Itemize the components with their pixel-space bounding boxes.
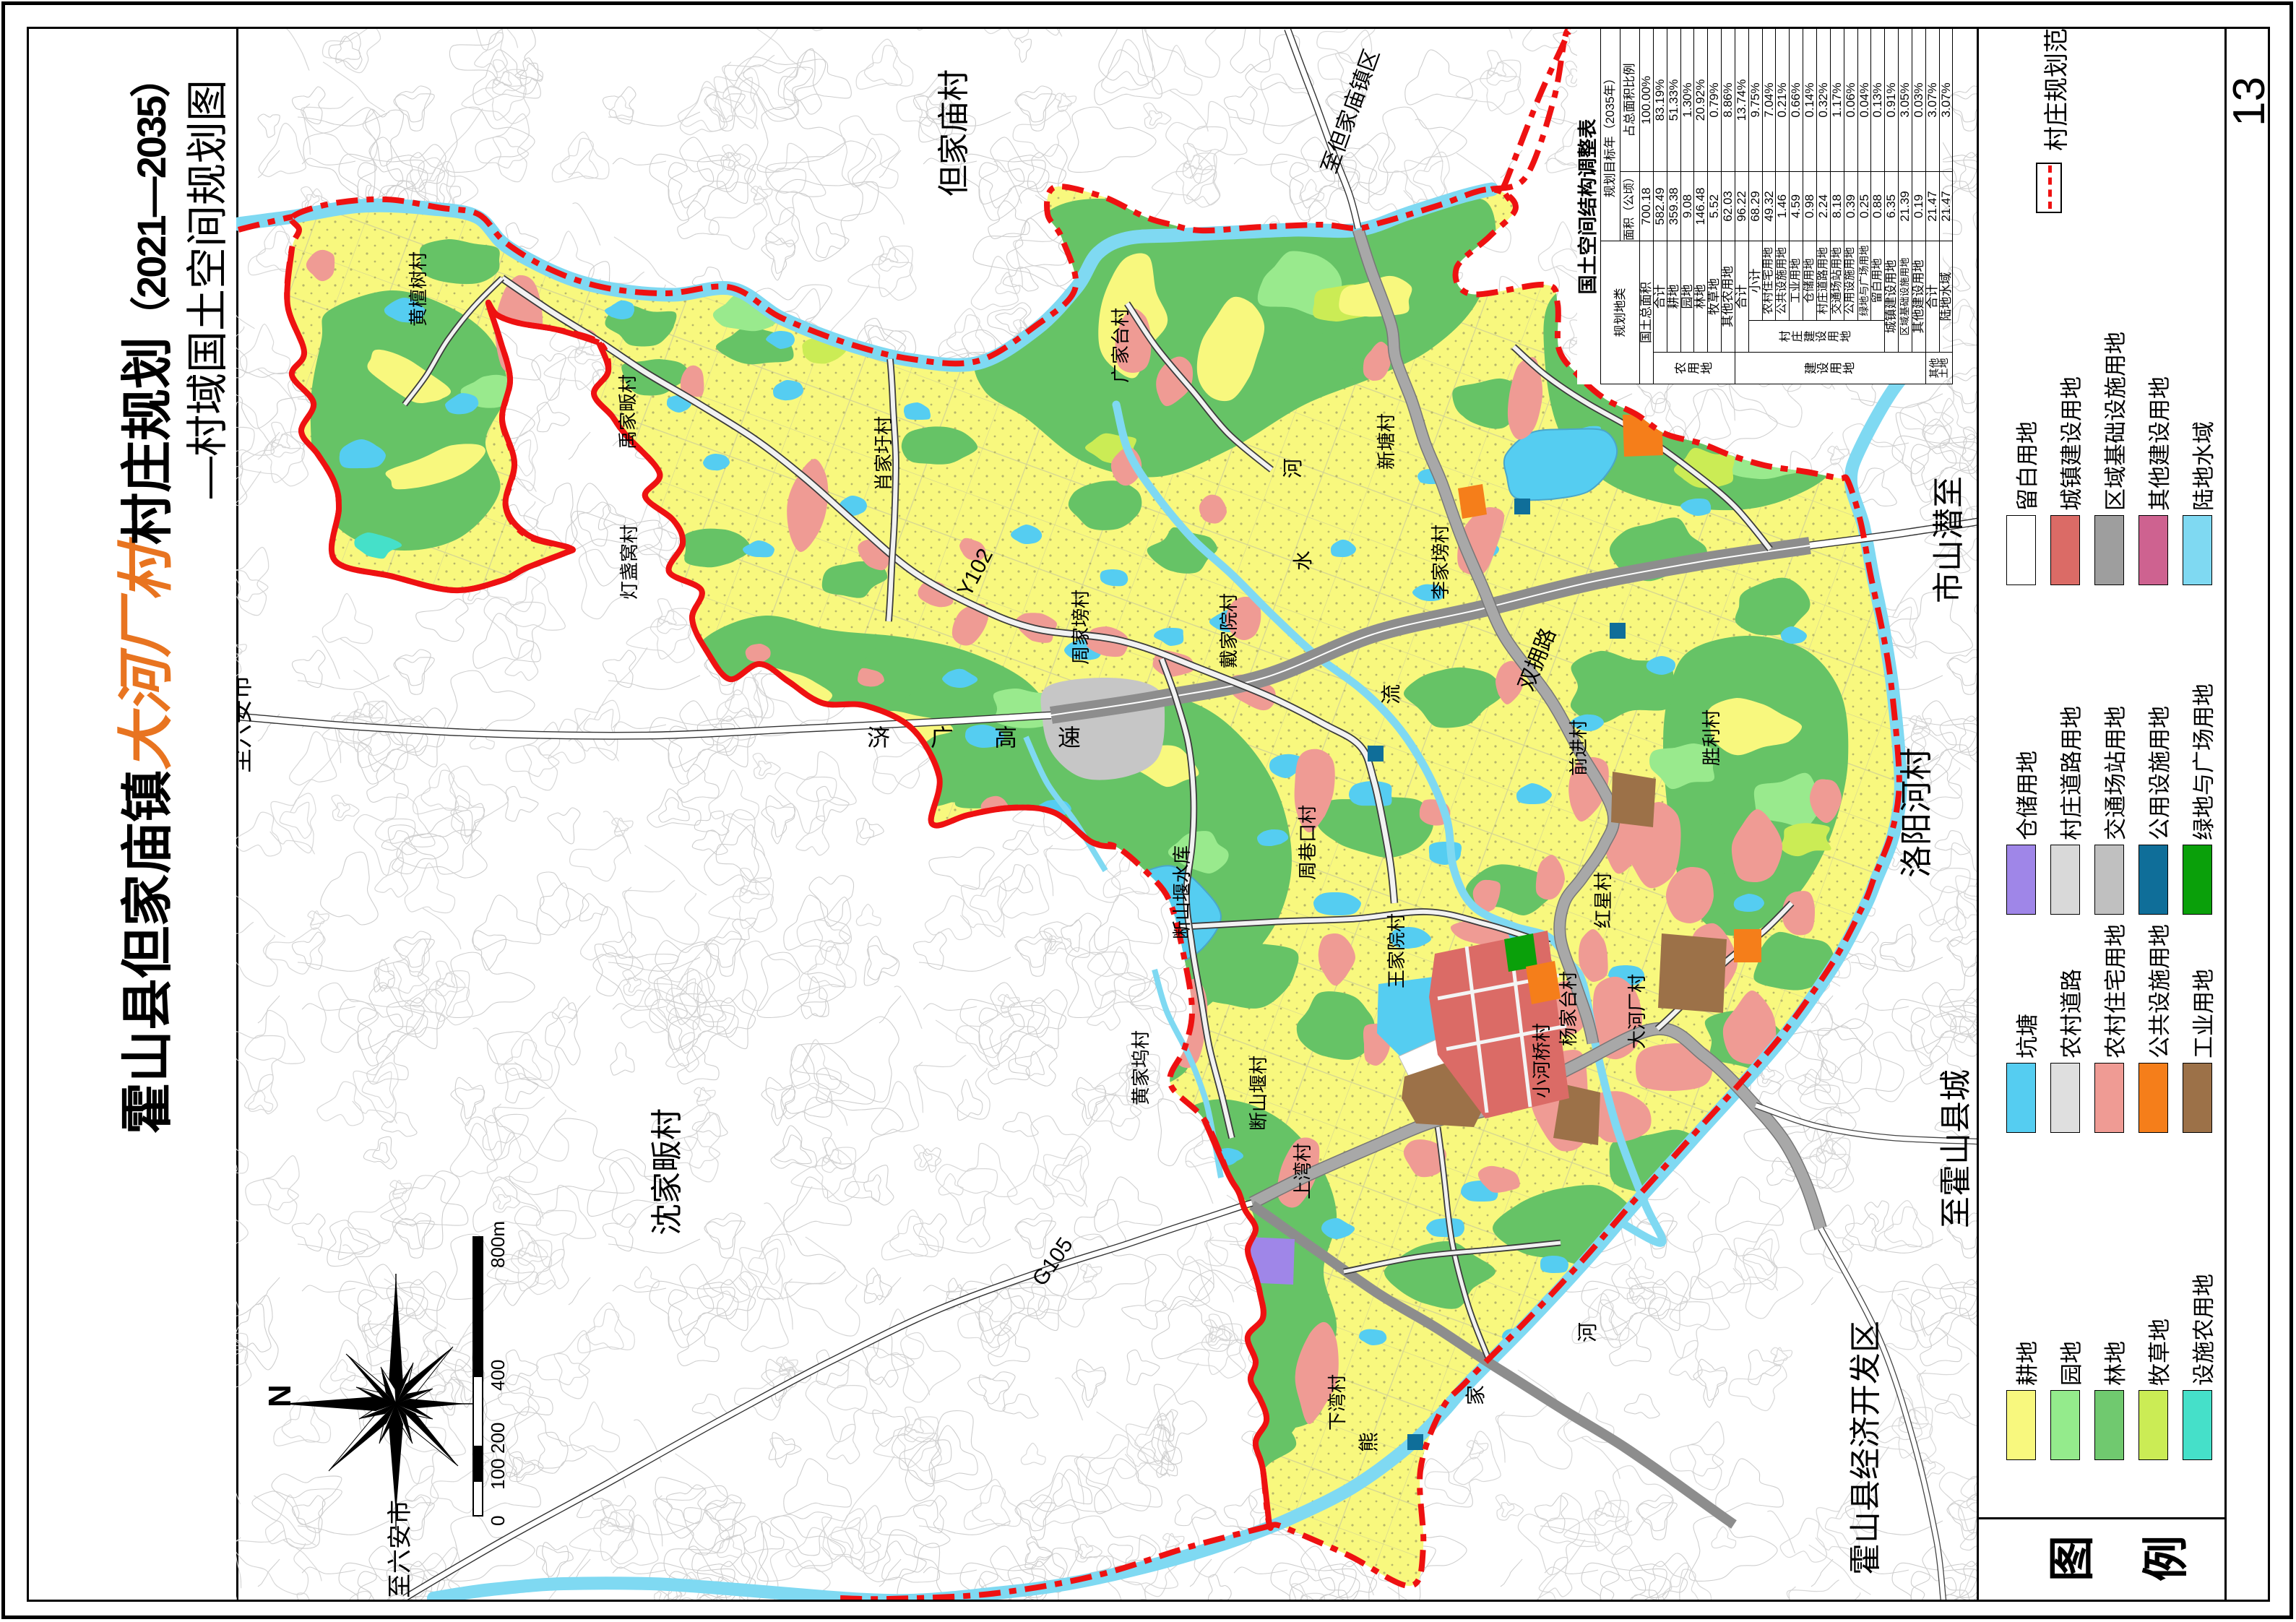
svg-text:济广高速: 济广高速 <box>867 725 1121 751</box>
svg-text:周家塝村: 周家塝村 <box>1070 590 1092 665</box>
svg-text:霍山县经济开发区: 霍山县经济开发区 <box>1848 1321 1883 1575</box>
svg-text:前进村: 前进村 <box>1568 720 1589 776</box>
svg-text:断山堰村: 断山堰村 <box>1248 1056 1269 1131</box>
svg-text:水: 水 <box>1292 551 1314 571</box>
svg-text:800m: 800m <box>487 1221 509 1268</box>
svg-text:杨家台村: 杨家台村 <box>1558 971 1579 1046</box>
svg-text:新塘村: 新塘村 <box>1376 413 1397 470</box>
svg-text:胜利村: 胜利村 <box>1701 709 1722 766</box>
svg-text:100: 100 <box>487 1459 509 1490</box>
svg-text:肖家圩村: 肖家圩村 <box>873 416 894 491</box>
svg-text:断山堰水库: 断山堰水库 <box>1171 845 1193 939</box>
svg-text:黄檀树村: 黄檀树村 <box>407 251 429 327</box>
svg-text:至六安市: 至六安市 <box>387 1500 414 1598</box>
svg-text:广家台村: 广家台村 <box>1110 308 1131 383</box>
svg-text:200: 200 <box>487 1423 509 1454</box>
svg-text:黄家坞村: 黄家坞村 <box>1130 1030 1152 1105</box>
svg-text:李家塝村: 李家塝村 <box>1430 525 1451 600</box>
svg-text:400: 400 <box>487 1360 509 1391</box>
svg-text:市山潜至: 市山潜至 <box>1931 476 1967 603</box>
svg-text:上湾村: 上湾村 <box>1292 1143 1313 1199</box>
svg-text:熊: 熊 <box>1358 1432 1380 1452</box>
svg-text:下湾村: 下湾村 <box>1326 1374 1348 1431</box>
svg-text:禹家畈村: 禹家畈村 <box>617 374 639 449</box>
svg-text:至霍山县城: 至霍山县城 <box>1938 1069 1974 1228</box>
svg-text:N: N <box>262 1384 298 1407</box>
svg-text:王家院村: 王家院村 <box>1386 913 1407 988</box>
svg-text:流: 流 <box>1380 684 1402 704</box>
svg-text:河: 河 <box>1576 1322 1599 1342</box>
svg-text:大河厂村: 大河厂村 <box>1626 974 1648 1049</box>
svg-text:小河桥村: 小河桥村 <box>1531 1023 1553 1098</box>
svg-text:灯盏窝村: 灯盏窝村 <box>618 525 640 600</box>
svg-text:但家庙村: 但家庙村 <box>936 69 972 197</box>
svg-text:0: 0 <box>487 1516 509 1526</box>
svg-text:家: 家 <box>1464 1385 1487 1405</box>
svg-text:戴家院村: 戴家院村 <box>1218 593 1240 668</box>
svg-text:洛阳河村: 洛阳河村 <box>1898 748 1935 878</box>
svg-text:沈家畈村: 沈家畈村 <box>649 1108 685 1235</box>
svg-text:周巷口村: 周巷口村 <box>1297 805 1319 880</box>
svg-text:至六安市: 至六安市 <box>236 675 255 773</box>
svg-text:河: 河 <box>1282 458 1304 478</box>
svg-text:红星村: 红星村 <box>1592 872 1614 928</box>
